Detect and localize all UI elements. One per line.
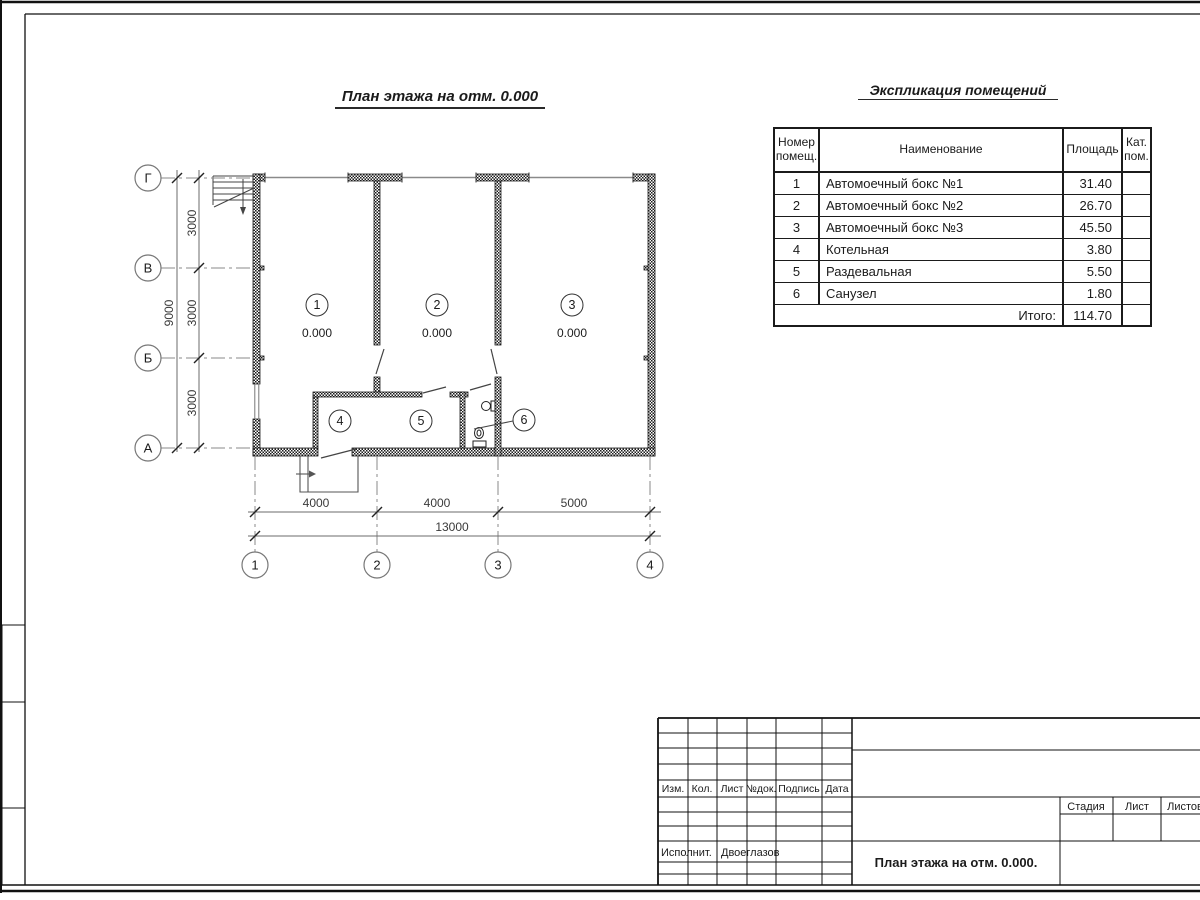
header-area: Площадь: [1063, 128, 1122, 172]
room-name: Котельная: [819, 239, 1063, 261]
executor-name: Двоеглазов: [721, 847, 780, 859]
table-row: 2 Автомоечный бокс №2 26.70: [774, 195, 1151, 217]
sanitary-fixtures: [473, 401, 495, 447]
room-num: 5: [774, 261, 819, 283]
room-number: 4: [337, 414, 344, 428]
elevation-mark: 0.000: [302, 326, 332, 340]
axis-number: 4: [646, 558, 653, 573]
dim-label: 3000: [185, 299, 199, 326]
axis-number: 2: [373, 558, 380, 573]
axis-letter: Г: [144, 171, 151, 186]
room-area: 1.80: [1063, 283, 1122, 305]
room-area: 5.50: [1063, 261, 1122, 283]
room-category: [1122, 217, 1151, 239]
room-category: [1122, 283, 1151, 305]
room-num: 1: [774, 172, 819, 195]
stamp-col-izm: Изм.: [662, 783, 685, 795]
dim-label: 3000: [185, 389, 199, 416]
room-num: 3: [774, 217, 819, 239]
door-leaves: [321, 349, 497, 458]
room-number: 3: [569, 298, 576, 312]
schedule-title: Экспликация помещений: [858, 82, 1058, 100]
dim-total-label: 9000: [162, 299, 176, 326]
room-name: Автомоечный бокс №3: [819, 217, 1063, 239]
room-num: 6: [774, 283, 819, 305]
room-num: 2: [774, 195, 819, 217]
axis-letter: Б: [144, 351, 153, 366]
plan-title: План этажа на отм. 0.000: [335, 88, 545, 109]
sheet-label: Лист: [1125, 801, 1149, 813]
stair-direction-arrow-icon: [240, 207, 246, 215]
room-name: Автомоечный бокс №1: [819, 172, 1063, 195]
axis-bubbles: Г В Б А 1 2 3 4: [135, 165, 663, 578]
header-name: Наименование: [819, 128, 1063, 172]
dim-label: 4000: [303, 496, 330, 510]
table-row: 6 Санузел 1.80: [774, 283, 1151, 305]
axis-letter: А: [144, 441, 153, 456]
room-number: 6: [521, 413, 528, 427]
header-category: Кат. пом.: [1122, 128, 1151, 172]
table-row: 5 Раздевальная 5.50: [774, 261, 1151, 283]
dim-label: 3000: [185, 209, 199, 236]
room-number: 2: [434, 298, 441, 312]
stamp-col-list: Лист: [721, 783, 744, 795]
total-label: Итого:: [774, 305, 1063, 327]
stamp-col-podpis: Подпись: [778, 783, 820, 795]
sheets-label: Листов: [1167, 801, 1200, 813]
dim-label: 5000: [561, 496, 588, 510]
elevation-mark: 0.000: [422, 326, 452, 340]
total-category: [1122, 305, 1151, 327]
room-name: Раздевальная: [819, 261, 1063, 283]
schedule-header-row: Номер помещ. Наименование Площадь Кат. п…: [774, 128, 1151, 172]
room-category: [1122, 261, 1151, 283]
room-category: [1122, 172, 1151, 195]
stamp-col-data: Дата: [825, 783, 848, 795]
room-number: 1: [314, 298, 321, 312]
room-schedule: Номер помещ. Наименование Площадь Кат. п…: [773, 127, 1152, 327]
dim-total-label: 13000: [435, 520, 469, 534]
dimension-lines: 3000 3000 3000 9000 4000 4000 5000 13000: [162, 170, 661, 541]
drawing-sheet: { "sheet": { "plan_title": "План этажа н…: [0, 0, 1200, 900]
room-area: 26.70: [1063, 195, 1122, 217]
room-category: [1122, 239, 1151, 261]
room-num: 4: [774, 239, 819, 261]
axis-number: 3: [494, 558, 501, 573]
header-number: Номер помещ.: [774, 128, 819, 172]
room-area: 45.50: [1063, 217, 1122, 239]
room-number: 5: [418, 414, 425, 428]
table-row: 3 Автомоечный бокс №3 45.50: [774, 217, 1151, 239]
entrance-porch: [296, 456, 358, 492]
entrance-arrow-icon: [309, 471, 316, 478]
axis-letter: В: [144, 261, 153, 276]
table-row: 4 Котельная 3.80: [774, 239, 1151, 261]
room6-leader-line: [474, 421, 513, 429]
document-title: План этажа на отм. 0.000.: [875, 855, 1038, 870]
executor-label: Исполнит.: [661, 847, 712, 859]
room-name: Санузел: [819, 283, 1063, 305]
staircase: [213, 176, 254, 215]
stamp-col-kol: Кол.: [692, 783, 713, 795]
schedule-total-row: Итого: 114.70: [774, 305, 1151, 327]
stamp-col-doc: №док.: [746, 783, 777, 795]
room-category: [1122, 195, 1151, 217]
total-area: 114.70: [1063, 305, 1122, 327]
axis-number: 1: [251, 558, 258, 573]
dim-label: 4000: [424, 496, 451, 510]
room-schedule-table: Номер помещ. Наименование Площадь Кат. п…: [773, 127, 1152, 327]
stage-label: Стадия: [1067, 801, 1105, 813]
table-row: 1 Автомоечный бокс №1 31.40: [774, 172, 1151, 195]
room-area: 3.80: [1063, 239, 1122, 261]
room-name: Автомоечный бокс №2: [819, 195, 1063, 217]
elevation-mark: 0.000: [557, 326, 587, 340]
dimension-ticks: [172, 173, 655, 541]
room-area: 31.40: [1063, 172, 1122, 195]
room-labels: 1 2 3 4 5 6 0.000 0.000 0.000: [302, 294, 587, 432]
sink-icon: [482, 402, 491, 411]
toilet-icon: [475, 428, 484, 439]
